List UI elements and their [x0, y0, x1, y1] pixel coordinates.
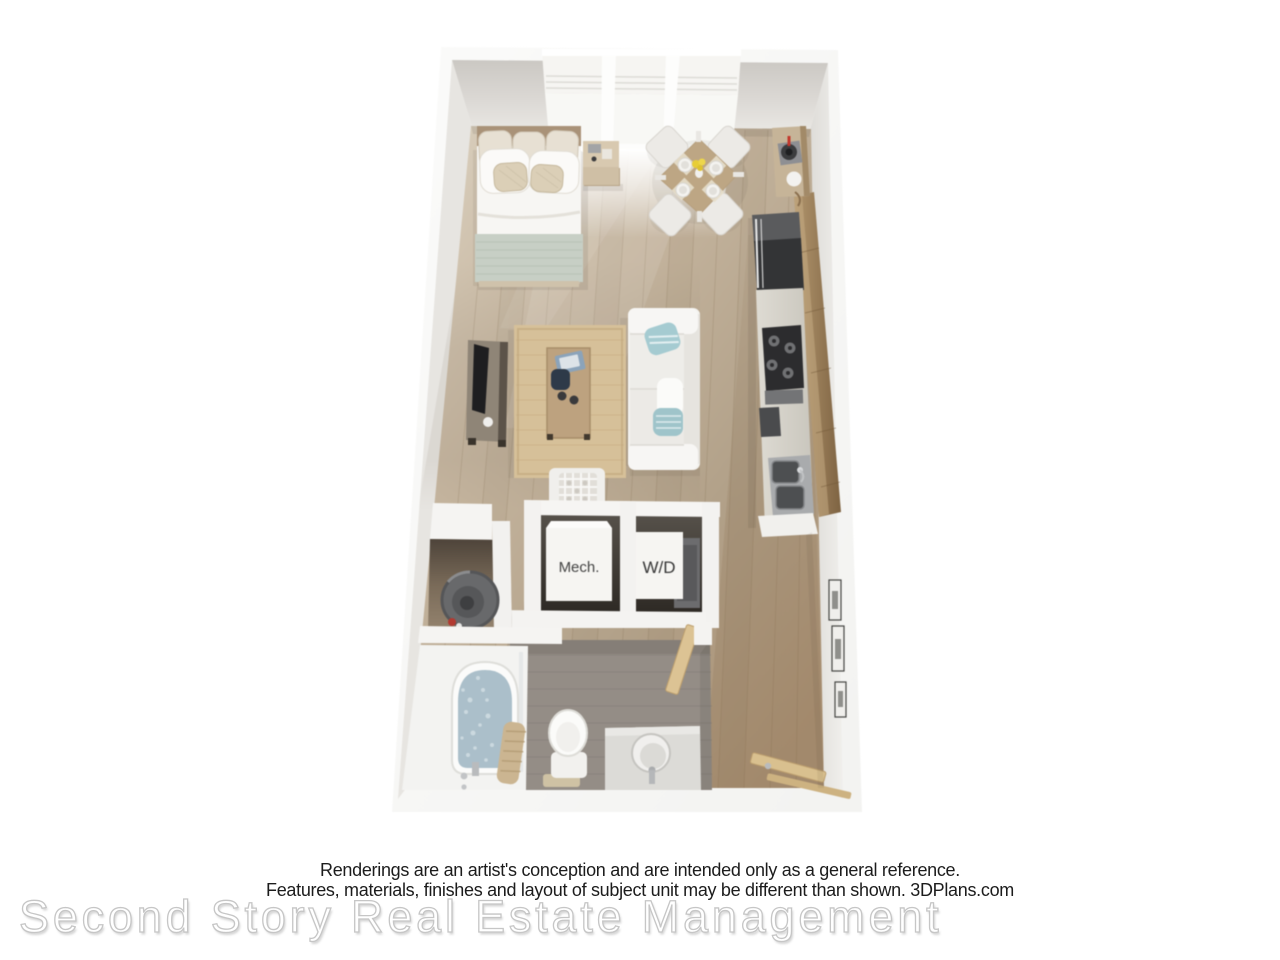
svg-text:Mech.: Mech. — [559, 559, 600, 576]
svg-text:W/D: W/D — [642, 558, 675, 577]
